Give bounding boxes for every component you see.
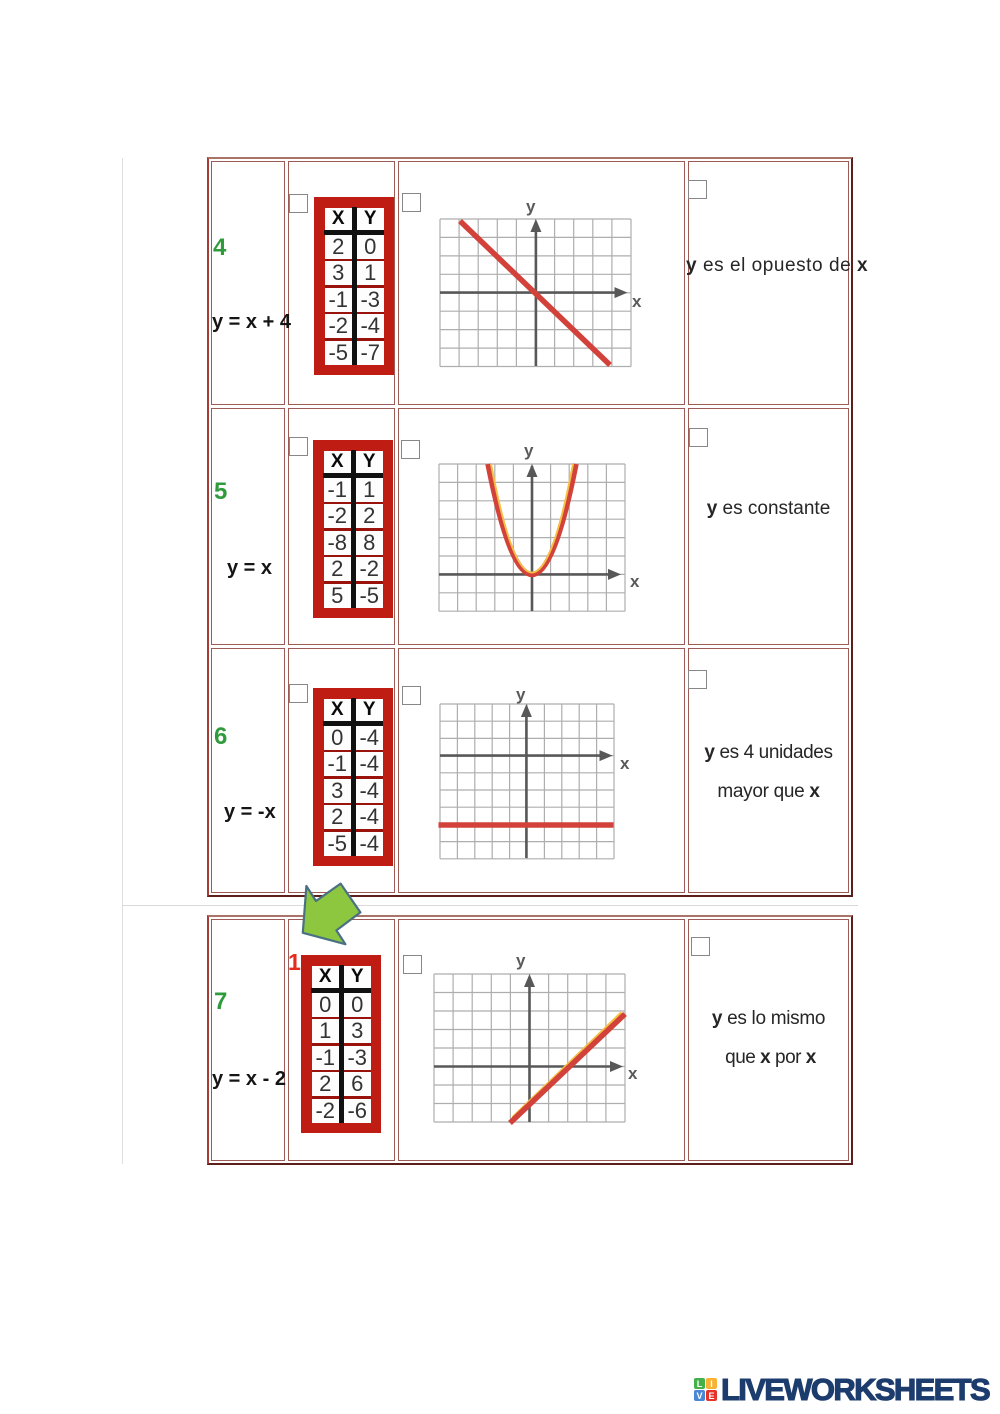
svg-text:x: x	[630, 572, 640, 591]
svg-text:y: y	[516, 951, 526, 970]
svg-text:V: V	[696, 1391, 702, 1401]
svg-text:L: L	[697, 1379, 703, 1389]
svg-text:E: E	[708, 1391, 714, 1401]
svg-text:x: x	[620, 754, 630, 773]
svg-text:x: x	[632, 292, 642, 311]
svg-text:y: y	[524, 441, 534, 460]
svg-text:y: y	[516, 685, 526, 704]
svg-text:I: I	[710, 1379, 713, 1389]
svg-text:y: y	[526, 197, 536, 216]
svg-text:x: x	[628, 1064, 638, 1083]
